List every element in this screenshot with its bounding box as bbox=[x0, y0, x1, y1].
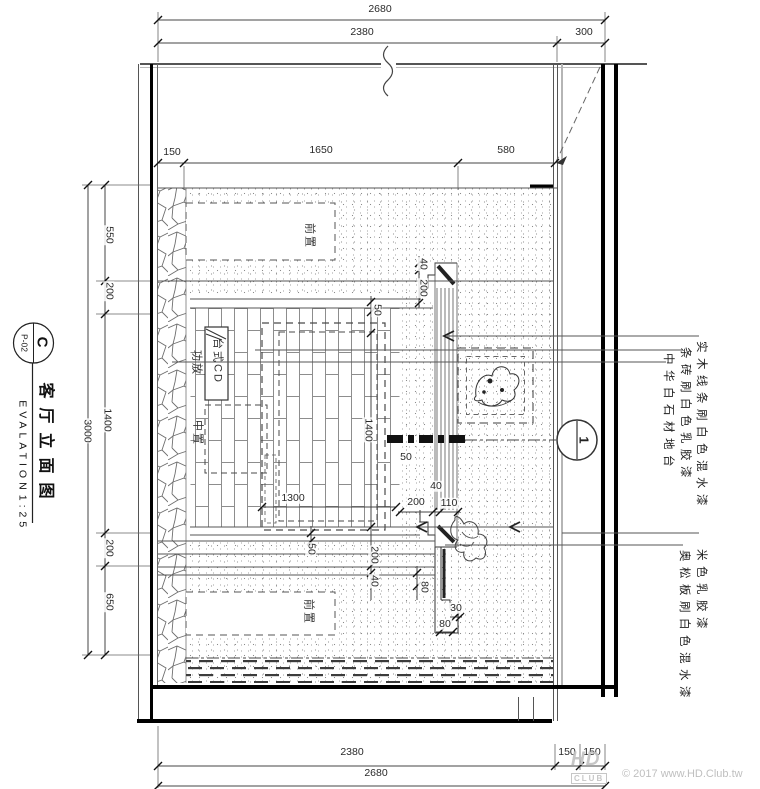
elevation-drawing: C P-02 客厅立面图 EVALATION 1:25 1 HD CLUB © … bbox=[0, 0, 760, 789]
dim-label: 550 bbox=[104, 225, 115, 245]
watermark-logo-bottom: CLUB bbox=[571, 773, 607, 784]
dim-label: 200 bbox=[406, 497, 426, 508]
dim-label: 200 bbox=[104, 281, 115, 301]
dim-label: 200 bbox=[369, 545, 380, 565]
dim-label: 80 bbox=[419, 580, 430, 594]
dim-label: 110 bbox=[440, 498, 459, 509]
watermark-logo-top: HD bbox=[571, 752, 607, 768]
section-number: 1 bbox=[578, 436, 591, 443]
cad-linework bbox=[0, 0, 760, 789]
picture-frame bbox=[458, 348, 533, 423]
equipment-label: 中置 bbox=[192, 420, 203, 446]
dim-label: 2380 bbox=[339, 747, 364, 758]
dim-label: 80 bbox=[438, 619, 452, 630]
material-annotation: 米色乳胶漆 bbox=[695, 549, 707, 634]
dim-label: 40 bbox=[429, 481, 443, 492]
stone-platform-hatch bbox=[158, 188, 186, 683]
dim-label: 200 bbox=[104, 538, 115, 558]
dim-label: 2680 bbox=[367, 4, 392, 15]
dim-label: 50 bbox=[372, 303, 383, 317]
dim-label: 650 bbox=[104, 592, 115, 612]
drawing-scale: 1:25 bbox=[17, 495, 28, 531]
dim-label: 40 bbox=[418, 257, 429, 271]
equipment-label: 前置 bbox=[304, 223, 315, 249]
material-annotation: 条砖刷白色乳胶漆 bbox=[679, 347, 691, 483]
dim-label: 2380 bbox=[349, 27, 374, 38]
dim-label: 1650 bbox=[308, 145, 333, 156]
dim-label: 1300 bbox=[280, 493, 305, 504]
material-annotation: 实木线条刷白色混水漆 bbox=[695, 341, 707, 511]
detail-letter: C bbox=[35, 337, 50, 348]
dim-label: 3000 bbox=[82, 418, 93, 443]
dim-label: 1400 bbox=[363, 417, 374, 442]
dim-label: 40 bbox=[369, 574, 380, 588]
dim-label: 580 bbox=[496, 145, 516, 156]
drawing-title: 客厅立面图 bbox=[37, 382, 53, 507]
watermark-copyright: © 2017 www.HD.Club.tw bbox=[622, 768, 743, 780]
dim-label: 50 bbox=[399, 452, 413, 463]
equipment-label: 台式CD bbox=[212, 338, 223, 384]
break-line-symbol bbox=[381, 46, 396, 96]
drawing-title-en: EVALATION bbox=[17, 400, 28, 493]
dim-label: 2680 bbox=[363, 768, 388, 779]
dim-label: 50 bbox=[306, 542, 317, 556]
material-annotation: 中华白石材地台 bbox=[662, 353, 674, 472]
watermark-logo: HD CLUB bbox=[571, 752, 607, 786]
dim-label: 150 bbox=[162, 147, 182, 158]
dim-label: 300 bbox=[574, 27, 594, 38]
section-cut-line bbox=[387, 435, 556, 443]
sheet-number: P-02 bbox=[20, 334, 29, 352]
dim-label: 30 bbox=[449, 603, 463, 614]
equipment-label: 前置 bbox=[303, 599, 314, 625]
dim-label: 1400 bbox=[102, 407, 113, 432]
skirting-dash-rows bbox=[186, 660, 553, 683]
equipment-label: 功放 bbox=[191, 350, 202, 376]
material-annotation: 奥松板刷白色混水漆 bbox=[678, 550, 690, 703]
dim-label: 200 bbox=[418, 278, 429, 298]
